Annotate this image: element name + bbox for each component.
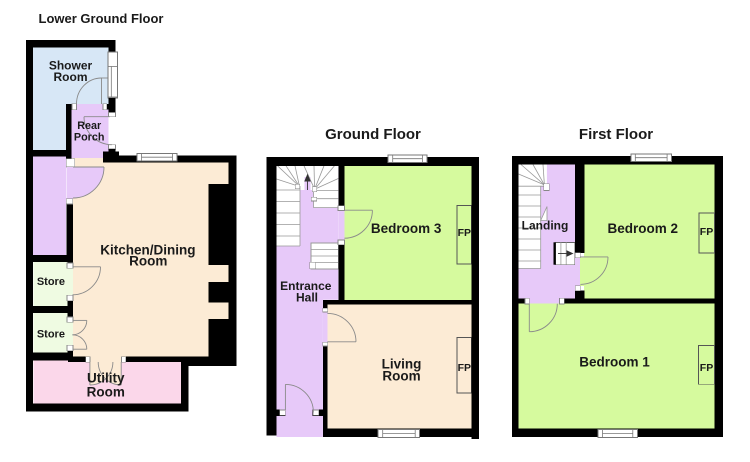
svg-text:Porch: Porch bbox=[74, 131, 105, 143]
svg-text:Rear: Rear bbox=[77, 120, 102, 132]
svg-text:Landing: Landing bbox=[522, 219, 569, 233]
svg-text:Room: Room bbox=[129, 253, 167, 268]
svg-text:Bedroom 3: Bedroom 3 bbox=[371, 221, 442, 236]
svg-text:FP: FP bbox=[700, 226, 713, 238]
svg-text:Utility: Utility bbox=[87, 371, 125, 386]
svg-text:Room: Room bbox=[87, 384, 125, 399]
svg-text:Hall: Hall bbox=[296, 291, 318, 305]
svg-text:Store: Store bbox=[37, 276, 65, 288]
svg-text:Room: Room bbox=[382, 369, 420, 384]
svg-text:Store: Store bbox=[37, 329, 65, 341]
svg-text:First Floor: First Floor bbox=[579, 126, 653, 143]
svg-text:Bedroom 1: Bedroom 1 bbox=[579, 355, 650, 370]
svg-text:FP: FP bbox=[458, 362, 471, 374]
svg-text:FP: FP bbox=[700, 362, 713, 374]
svg-text:FP: FP bbox=[458, 227, 471, 239]
svg-text:Room: Room bbox=[54, 70, 88, 84]
svg-text:Lower Ground Floor: Lower Ground Floor bbox=[39, 11, 164, 26]
svg-text:Ground Floor: Ground Floor bbox=[325, 126, 421, 143]
svg-text:Bedroom 2: Bedroom 2 bbox=[608, 221, 679, 236]
